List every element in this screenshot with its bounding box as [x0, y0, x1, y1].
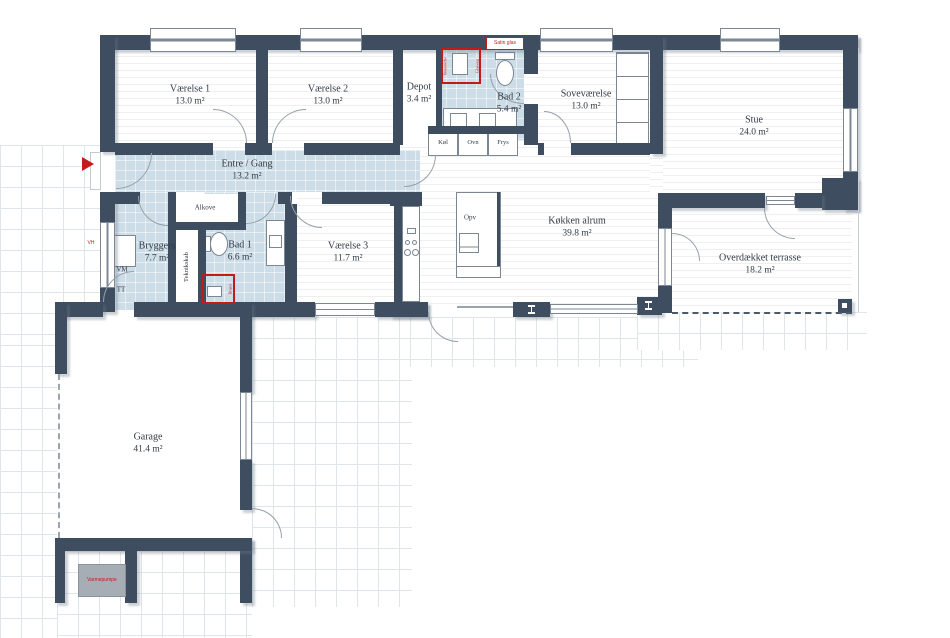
wall-exterior-left-upper: [100, 35, 115, 152]
window-vaerelse3-bottom: [315, 303, 375, 316]
room-area: 24.0 m²: [739, 126, 768, 138]
room-label-bad1: Bad 1 6.6 m²: [228, 238, 253, 263]
wall-stue-corner: [822, 178, 858, 210]
room-name: Bad 2: [497, 90, 522, 103]
room-name: Overdækket terrasse: [719, 251, 801, 264]
wall-garage-top-b: [134, 302, 315, 317]
cooktop-burner: [412, 240, 417, 245]
cooktop-burner: [404, 249, 411, 256]
wall-house-bottom-c: [375, 302, 428, 317]
wall-vaerelse3-kitchen: [394, 206, 402, 302]
wall-terrasse-top-b: [795, 193, 822, 208]
annotation-bad1-shower: Bruser: [227, 284, 232, 295]
label-koel: Køl: [438, 139, 448, 147]
room-area: 41.4 m²: [133, 443, 162, 455]
terrain-grid: [252, 317, 412, 607]
wall-stub-middle: [125, 551, 137, 603]
wardrobe-sovevaerelse: [616, 52, 649, 144]
label-tt: TT: [117, 285, 126, 294]
door-sill-stue-terrasse: [766, 196, 795, 205]
annotation-outdoor-tap: VH: [88, 240, 95, 247]
floor-garage: [67, 317, 240, 538]
room-name: Entre / Gang: [221, 157, 272, 170]
sink-basin: [269, 235, 282, 248]
window-terrasse-door: [658, 228, 672, 286]
shower-sink-bad1: [207, 286, 222, 297]
roof-edge-line: [858, 48, 859, 312]
floor-plan: Værelse 1 13.0 m² Værelse 2 13.0 m² Depo…: [0, 0, 950, 638]
label-ovn: Ovn: [467, 139, 478, 147]
window-stue-right: [843, 108, 858, 172]
room-label-sovevaerelse: Soveværelse 13.0 m²: [561, 87, 612, 112]
wall-bad1-vaerelse3: [285, 204, 297, 304]
room-name: Garage: [133, 430, 162, 443]
room-name: Køkken alrum: [548, 214, 606, 227]
window-stue-top: [720, 28, 780, 52]
terrasse-edge-dashed: [672, 312, 852, 314]
wall-vaerelse3-kitchen-corner: [390, 192, 422, 206]
wall-sovevaerelse-bottom-a: [538, 143, 544, 155]
wall-garage-bottom: [55, 538, 252, 551]
door-sill-side-exit: [457, 306, 513, 308]
wall-terrasse-left-a: [658, 208, 672, 228]
wall-stub-left: [55, 551, 65, 603]
wall-bad2-sovevaerelse-a: [524, 50, 538, 74]
kitchen-sink: [407, 228, 416, 234]
toilet-bowl-bad1: [210, 232, 228, 256]
label-opv: Opv: [464, 213, 476, 222]
wall-sovevaerelse-bottom-b: [571, 143, 650, 155]
room-area: 7.7 m²: [139, 252, 176, 264]
room-name: Soveværelse: [561, 87, 612, 100]
room-name: Værelse 1: [170, 82, 210, 95]
room-label-bryggers: Bryggers 7.7 m²: [139, 239, 176, 264]
toilet-tank-bad2: [495, 52, 515, 60]
annotation-satin-glas: Satin glas: [494, 40, 516, 47]
room-area: 13.0 m²: [561, 100, 612, 112]
room-name: Depot: [407, 80, 432, 93]
room-name: Værelse 3: [328, 239, 368, 252]
dishwasher: [459, 233, 479, 253]
wall-garage-left-upper: [55, 302, 67, 374]
wall-garage-right-a: [240, 302, 252, 392]
room-area: 13.2 m²: [221, 170, 272, 182]
room-label-vaerelse2: Værelse 2 13.0 m²: [308, 82, 348, 107]
shower-niche-bad2: [452, 53, 468, 75]
label-teknikskab: Teknikskab: [183, 252, 191, 282]
room-name: Bad 1: [228, 238, 253, 251]
room-label-vaerelse3: Værelse 3 11.7 m²: [328, 239, 368, 264]
garage-port-dashed: [58, 374, 60, 538]
terrain-grid: [637, 312, 867, 350]
sliding-door-kitchen: [550, 304, 638, 314]
wall-garage-right-b: [240, 460, 252, 510]
island-base-cabinet: [456, 266, 501, 278]
room-name: Bryggers: [139, 239, 176, 252]
cooktop-burner: [412, 249, 419, 256]
room-label-koekken: Køkken alrum 39.8 m²: [548, 214, 606, 239]
room-label-stue: Stue 24.0 m²: [739, 113, 768, 138]
room-label-terrasse: Overdækket terrasse 18.2 m²: [719, 251, 801, 276]
wall-vaerelse2-depot: [393, 50, 403, 145]
room-area: 6.6 m²: [228, 251, 253, 263]
section-marker: [645, 301, 652, 310]
wall-alkove-bottom: [168, 222, 246, 230]
label-alkove: Alkove: [195, 203, 216, 212]
room-label-entre: Entre / Gang 13.2 m²: [221, 157, 272, 182]
window-vaerelse1: [150, 28, 236, 52]
window-vaerelse2: [300, 28, 362, 52]
label-frys: Frys: [497, 139, 509, 147]
wall-sovevaerelse-stue: [650, 35, 663, 154]
window-sovevaerelse: [540, 28, 613, 52]
post-dot: [842, 303, 847, 308]
annotation-bad2-shower-glass: Glasvæg: [474, 59, 479, 73]
room-area: 39.8 m²: [548, 227, 606, 239]
entrance-arrow-icon: [82, 157, 94, 171]
cooktop-burner: [405, 240, 410, 245]
section-marker: [528, 305, 535, 314]
room-area: 3.4 m²: [407, 93, 432, 105]
wall-terrasse-left-b: [658, 286, 672, 313]
wall-hall-bottom-a: [115, 192, 140, 204]
annotation-bad2-shower-side: Bruseniche: [442, 57, 447, 75]
wall-vaerelse1-2: [256, 50, 268, 145]
room-label-bad2: Bad 2 5.4 m²: [497, 90, 522, 115]
room-name: Værelse 2: [308, 82, 348, 95]
terrain-grid: [0, 345, 57, 638]
room-area: 13.0 m²: [308, 95, 348, 107]
label-vm: VM: [116, 265, 127, 274]
wall-bad2-sovevaerelse-b: [524, 104, 538, 145]
window-garage: [240, 392, 252, 460]
room-label-depot: Depot 3.4 m²: [407, 80, 432, 105]
room-label-garage: Garage 41.4 m²: [133, 430, 162, 455]
room-label-vaerelse1: Værelse 1 13.0 m²: [170, 82, 210, 107]
wall-terrasse-top-a: [658, 193, 765, 208]
room-area: 5.4 m²: [497, 103, 522, 115]
room-area: 18.2 m²: [719, 264, 801, 276]
wall-hall-top-b: [245, 143, 272, 155]
room-name: Stue: [739, 113, 768, 126]
room-area: 13.0 m²: [170, 95, 210, 107]
annotation-varmepumpe: Varmepumpe: [87, 577, 117, 584]
room-area: 11.7 m²: [328, 252, 368, 264]
wall-hall-top-c: [304, 143, 400, 155]
wall-bad2-bottom: [428, 126, 524, 134]
floor-passage: [650, 152, 663, 193]
